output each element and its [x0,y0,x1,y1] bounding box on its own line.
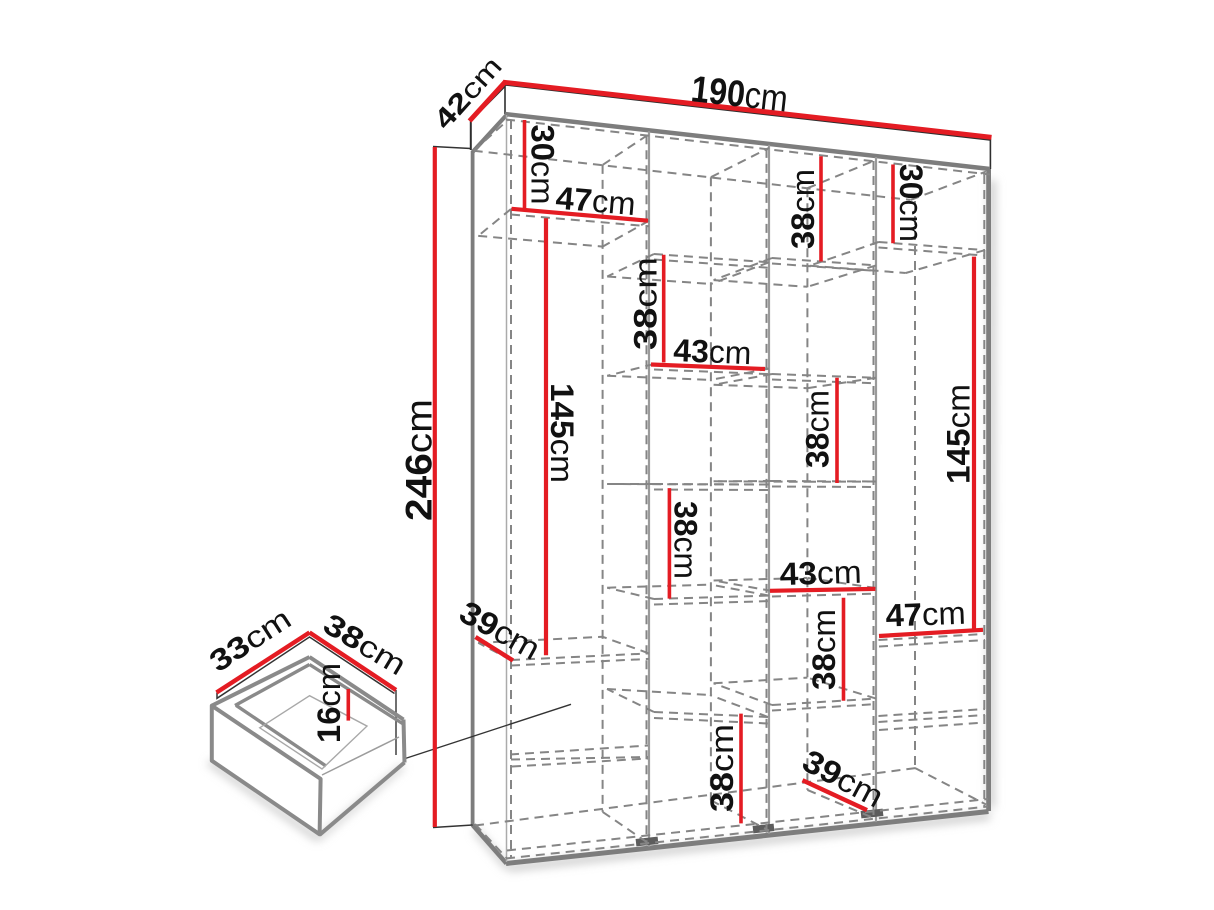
svg-text:38cm: 38cm [628,257,664,350]
svg-text:16cm: 16cm [311,663,347,743]
svg-text:145cm: 145cm [941,384,977,484]
svg-text:43cm: 43cm [673,332,752,371]
svg-text:38cm: 38cm [785,169,821,249]
svg-text:47cm: 47cm [885,595,966,634]
svg-text:246cm: 246cm [399,399,440,521]
svg-text:47cm: 47cm [554,180,637,223]
svg-text:30cm: 30cm [893,164,929,242]
svg-text:43cm: 43cm [779,554,862,592]
svg-text:38cm: 38cm [704,724,740,812]
svg-text:38cm: 38cm [668,501,704,579]
svg-text:145cm: 145cm [544,383,580,483]
svg-text:38cm: 38cm [800,390,836,468]
svg-text:38cm: 38cm [806,609,842,690]
svg-text:30cm: 30cm [525,125,561,205]
